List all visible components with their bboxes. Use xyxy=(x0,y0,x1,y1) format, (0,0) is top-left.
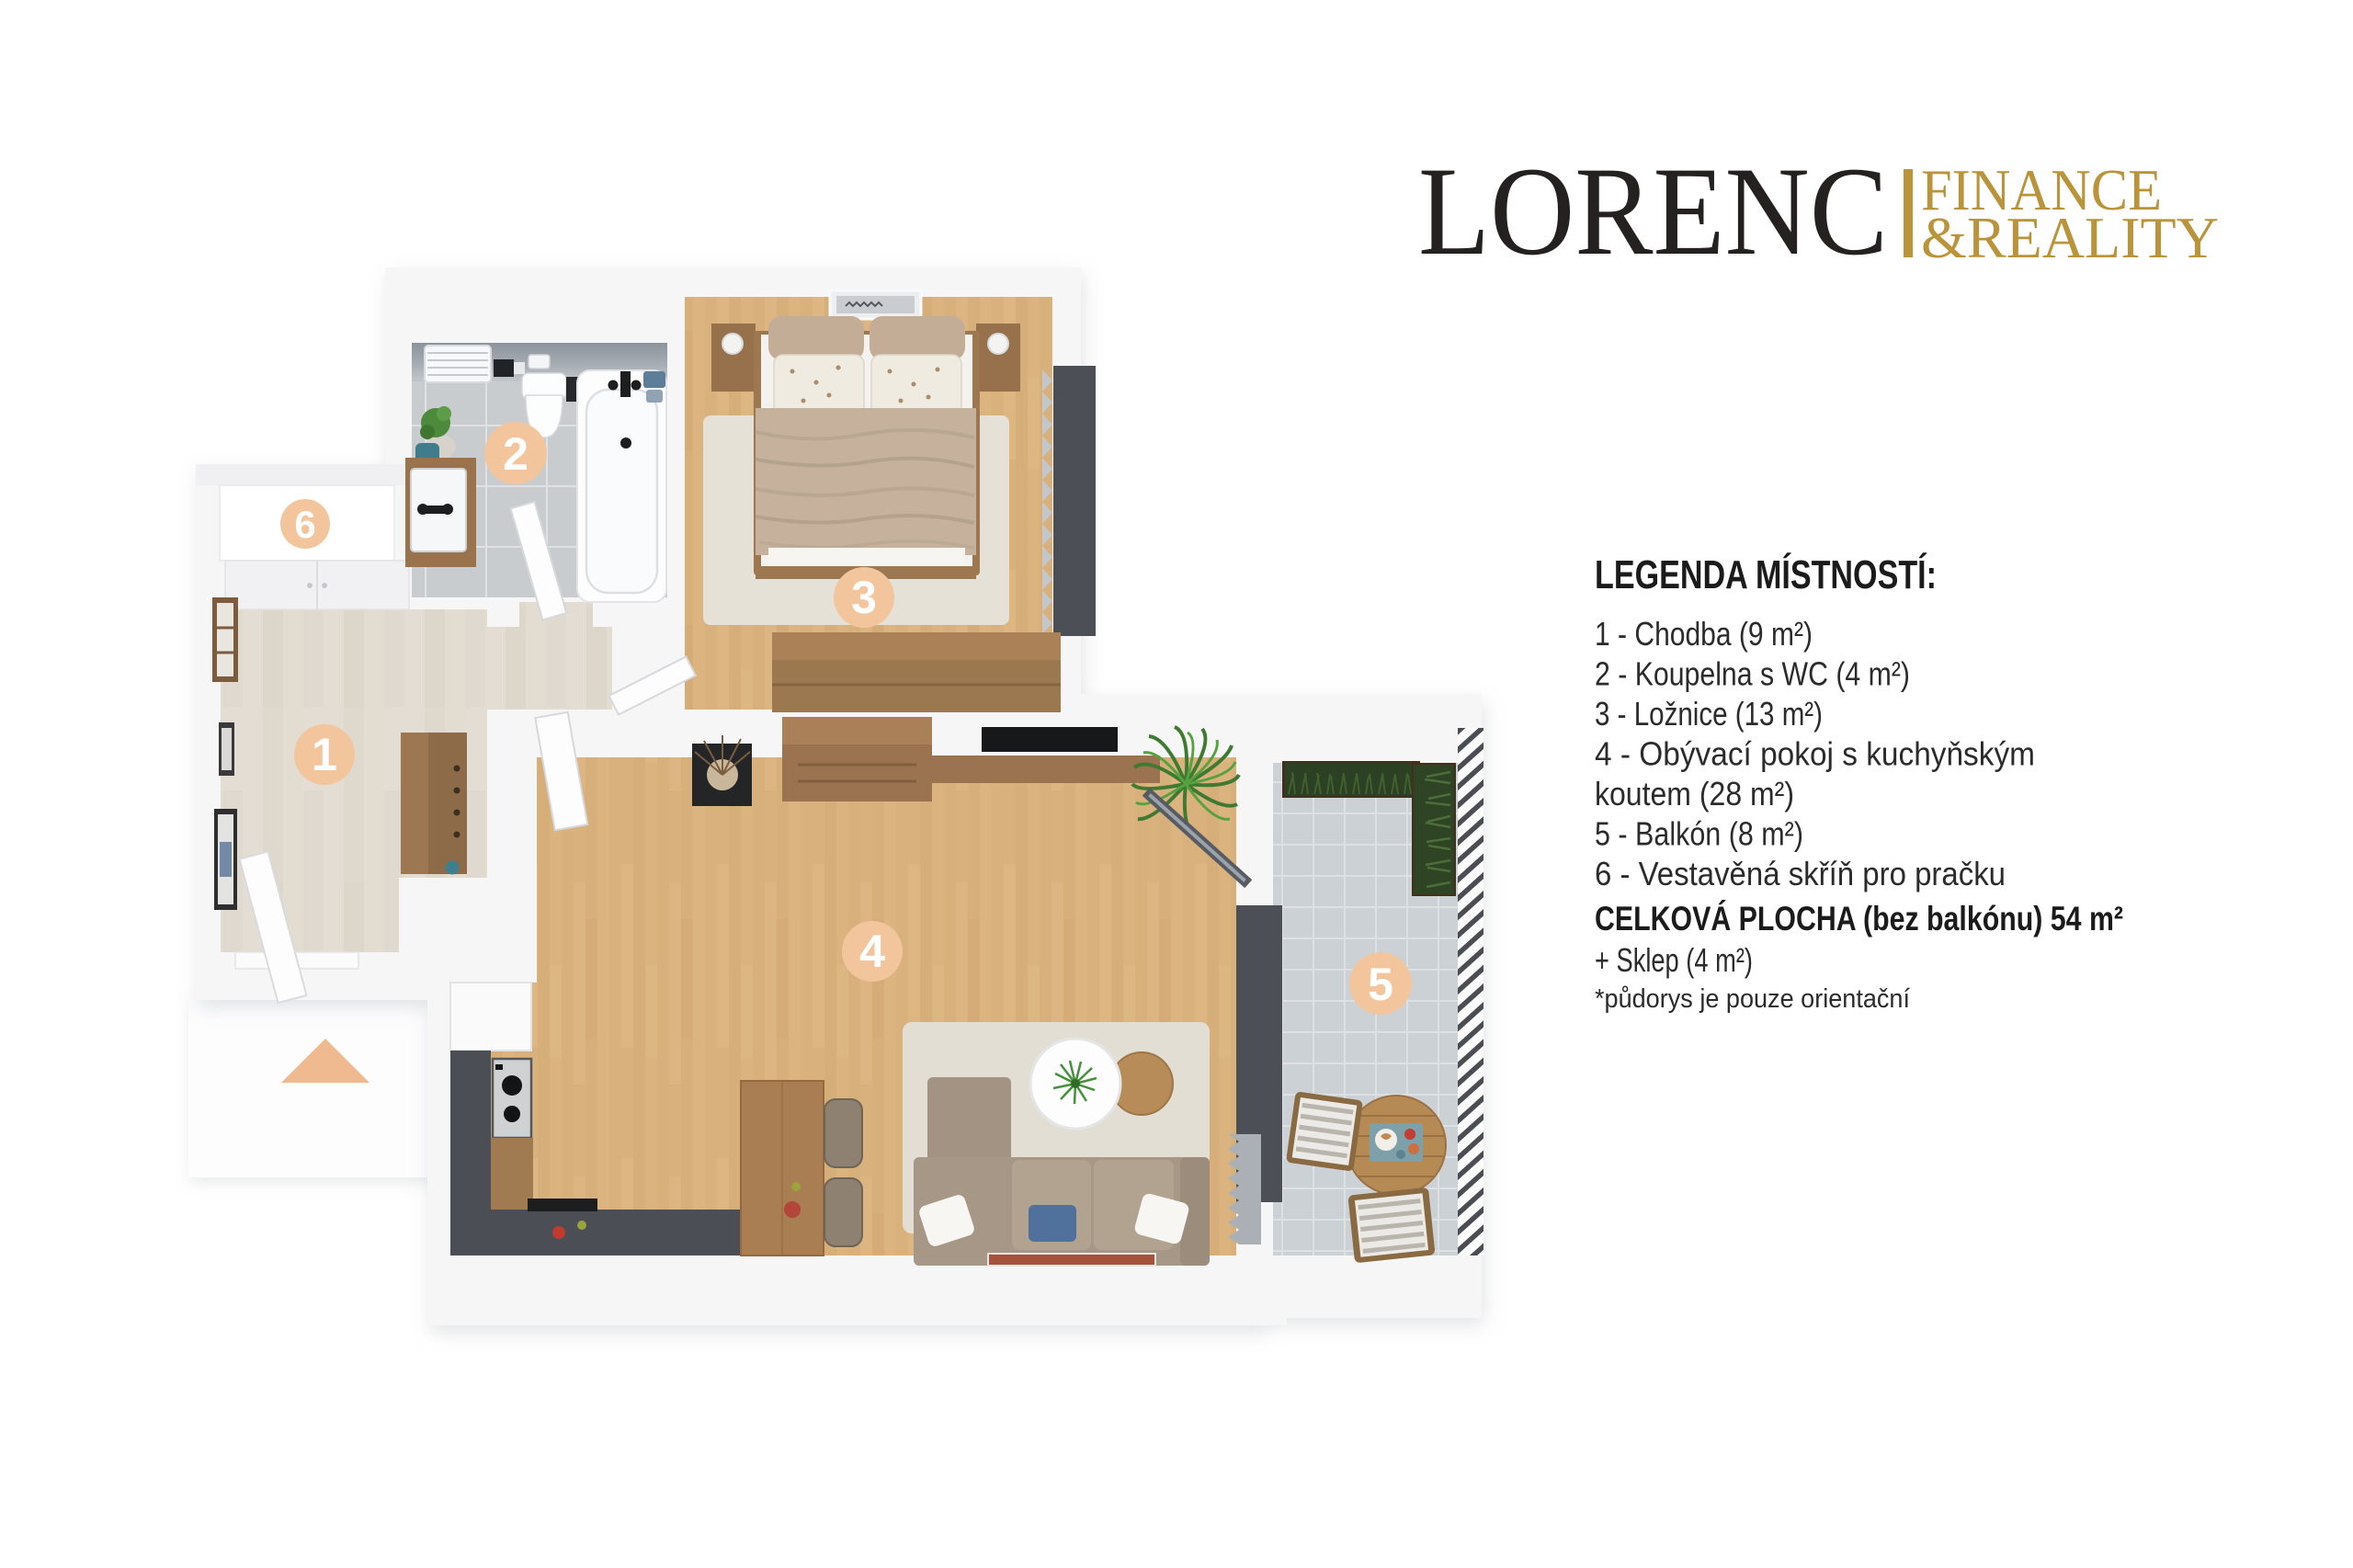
svg-text:2: 2 xyxy=(503,428,529,480)
svg-text:*půdorys je pouze orientační: *půdorys je pouze orientační xyxy=(1595,984,1910,1014)
svg-text:&REALITY: &REALITY xyxy=(1921,205,2219,270)
svg-text:LORENC: LORENC xyxy=(1418,141,1888,281)
svg-text:5 - Balkón (8 m²): 5 - Balkón (8 m²) xyxy=(1595,815,1803,853)
svg-text:3: 3 xyxy=(851,572,877,623)
svg-text:koutem (28 m²): koutem (28 m²) xyxy=(1595,775,1794,812)
svg-text:6: 6 xyxy=(294,503,315,546)
svg-text:1 - Chodba (9 m²): 1 - Chodba (9 m²) xyxy=(1595,615,1813,653)
svg-text:LEGENDA MÍSTNOSTÍ:: LEGENDA MÍSTNOSTÍ: xyxy=(1595,551,1937,597)
svg-text:+ Sklep (4 m²): + Sklep (4 m²) xyxy=(1595,941,1753,979)
svg-text:3 - Ložnice (13 m²): 3 - Ložnice (13 m²) xyxy=(1595,695,1823,733)
svg-text:6 - Vestavěná skříň pro pračku: 6 - Vestavěná skříň pro pračku xyxy=(1595,855,2006,892)
svg-text:1: 1 xyxy=(312,729,337,780)
svg-text:2 - Koupelna s WC (4 m²): 2 - Koupelna s WC (4 m²) xyxy=(1595,655,1910,693)
svg-text:4 - Obývací pokoj s kuchyňským: 4 - Obývací pokoj s kuchyňským xyxy=(1595,735,2035,773)
svg-text:5: 5 xyxy=(1368,959,1393,1010)
svg-text:CELKOVÁ PLOCHA (bez balkónu) 5: CELKOVÁ PLOCHA (bez balkónu) 54 m² xyxy=(1595,900,2123,937)
svg-text:4: 4 xyxy=(859,926,885,977)
